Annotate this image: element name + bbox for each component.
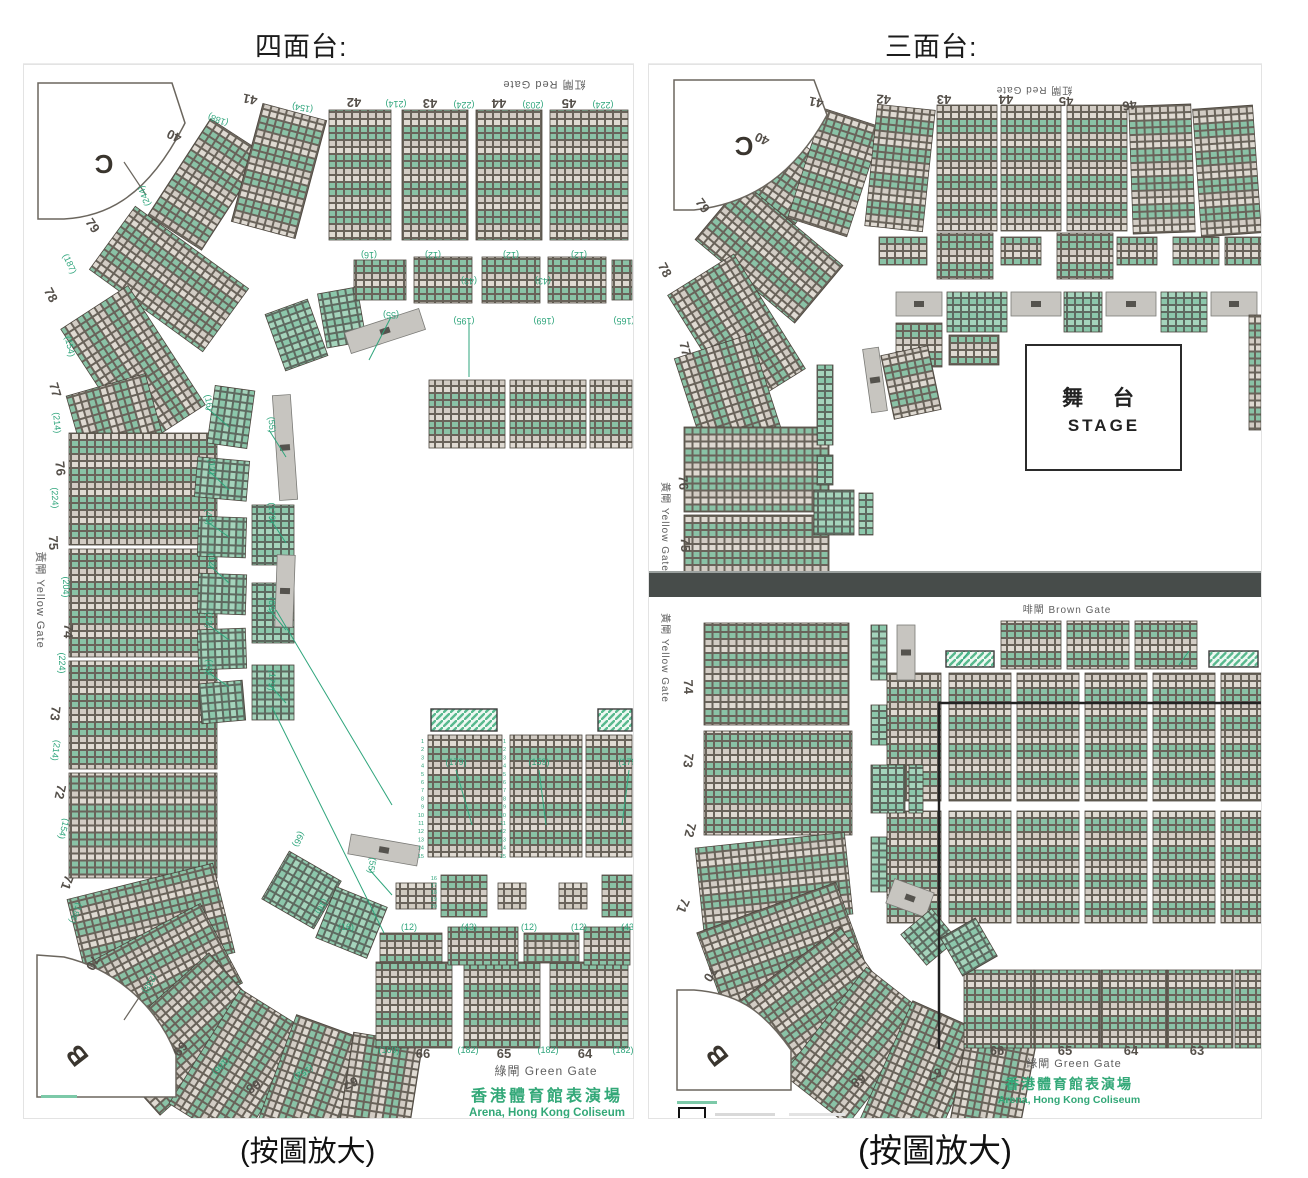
inner-block: [909, 765, 923, 813]
row-number: 9: [503, 805, 506, 811]
yellow-gate-label: 黃閘 Yellow Gate: [659, 482, 672, 572]
mid-block: [354, 260, 406, 300]
row-number: 5: [421, 772, 424, 778]
tier-block: [1173, 237, 1219, 265]
section-41[interactable]: [231, 104, 326, 239]
row-number: 14: [418, 846, 424, 852]
row-number: 7: [421, 788, 424, 794]
venue-name-zh: 香港體育館表演場: [1004, 1076, 1133, 1092]
floor-block: [1017, 673, 1079, 801]
row-number: 4: [421, 764, 424, 770]
seating-chart-three-sided[interactable]: CB紅閘 Red Gate黃閘 Yellow Gate黃閘 Yellow Gat…: [648, 64, 1262, 1119]
capacity: (179): [267, 502, 278, 523]
capacity: (179): [618, 757, 633, 767]
section-42[interactable]: [865, 104, 935, 231]
section-num: 71: [673, 896, 693, 915]
section-46[interactable]: [1129, 104, 1195, 234]
capacity: (12): [204, 612, 215, 628]
capacity: (224): [50, 487, 61, 508]
floor-block: [1153, 673, 1215, 801]
section-num: 43: [423, 96, 437, 111]
divider-top: [649, 571, 1261, 573]
screen-block: [1209, 651, 1258, 667]
row-number: 15: [500, 854, 506, 860]
corridor-strip: [1106, 292, 1156, 316]
row-number: 2: [421, 747, 424, 753]
row-number: 12: [500, 829, 506, 835]
floor-block: [949, 673, 1011, 801]
tier-block: [1225, 237, 1261, 265]
row-number: 6: [421, 780, 424, 786]
capacity: (12): [521, 922, 537, 932]
capacity: (214): [50, 739, 63, 761]
row-number: 8: [421, 796, 424, 802]
green-gate-label: 綠閘 Green Gate: [494, 1064, 597, 1078]
section-num: 66: [416, 1046, 430, 1061]
mid-block: [612, 260, 632, 300]
capacity: (43): [621, 922, 633, 932]
corridor-strip: [897, 625, 915, 680]
floor-block: [1085, 673, 1147, 801]
capacity: (169): [533, 316, 554, 326]
floor-block: [441, 875, 487, 917]
capacity: (182): [537, 1045, 558, 1055]
capacity: (195): [453, 316, 474, 326]
section-num: 66: [990, 1043, 1004, 1058]
screen-block: [431, 709, 497, 731]
row-number: 1: [503, 739, 506, 745]
inner-block: [871, 765, 905, 813]
section-74[interactable]: [704, 623, 849, 725]
section-65[interactable]: [1034, 970, 1100, 1048]
inner-block: [817, 365, 833, 445]
section-num: 45: [562, 96, 576, 111]
mid-block: [482, 257, 540, 303]
corridor-tag: [914, 301, 924, 307]
row-number: 17: [431, 883, 437, 889]
row-number: 18: [431, 890, 437, 896]
section-edge[interactable]: [1235, 970, 1261, 1048]
capacity: (244): [136, 184, 153, 207]
tier-block: [1064, 292, 1102, 332]
row-number: 9: [421, 805, 424, 811]
section-num: 75: [678, 537, 693, 552]
row-number: 5: [503, 772, 506, 778]
corridor-strip: [348, 834, 420, 866]
row-number: 6: [503, 780, 506, 786]
corridor-tag: [1031, 301, 1041, 307]
row-number: 4: [503, 764, 506, 770]
capacity: (55): [383, 310, 399, 320]
section-num: 44: [998, 92, 1013, 107]
inner-block: [197, 573, 246, 615]
row-number: 10: [418, 813, 424, 819]
capacity: (159): [528, 757, 549, 767]
floor-block: [586, 735, 632, 857]
capacity: (12): [571, 922, 587, 932]
row-number: 11: [500, 821, 506, 827]
corridor-strip: [1211, 292, 1257, 316]
section-num: 78: [41, 285, 61, 305]
legend-text-bar: [789, 1113, 845, 1116]
section-74[interactable]: [69, 661, 217, 769]
section-num: 74: [681, 679, 697, 695]
screen-block: [946, 651, 994, 667]
floor-block: [1135, 621, 1197, 669]
row-number: 7: [503, 788, 506, 794]
right-panel-title: 三面台:: [885, 25, 978, 64]
capacity: (43): [461, 276, 477, 286]
section-num: 42: [347, 95, 361, 110]
tier-block: [1001, 237, 1041, 265]
section-num: 75: [46, 535, 61, 550]
row-number: 15: [418, 854, 424, 860]
row-number: 20: [431, 904, 437, 910]
inner-block: [207, 385, 255, 448]
row-number: 10: [500, 813, 506, 819]
screen-block: [598, 709, 632, 731]
venue-name-en: Arena, Hong Kong Coliseum: [469, 1107, 625, 1118]
row-number: 8: [503, 796, 506, 802]
corridor-tag: [280, 588, 290, 594]
floor-block: [1001, 621, 1061, 669]
seating-chart-four-sided[interactable]: 1234567891011121314151234567891011121314…: [23, 64, 634, 1119]
capacity: (16): [203, 394, 216, 412]
inner-block: [859, 493, 873, 535]
stage-label-en: STAGE: [1068, 416, 1140, 435]
capacity: (43): [204, 509, 215, 525]
small-print: [41, 1095, 77, 1098]
capacity: (224): [453, 100, 474, 110]
section-num: 74: [61, 624, 77, 640]
tier-block: [1161, 292, 1207, 332]
section-43[interactable]: [937, 105, 997, 231]
row-number: 3: [503, 755, 506, 761]
corner-letter-c: C: [94, 149, 113, 179]
section-num: 43: [937, 92, 951, 107]
section-num: 72: [52, 783, 70, 800]
inner-block: [871, 625, 887, 680]
capacity: (224): [57, 652, 67, 673]
row-number: 14: [500, 846, 506, 852]
section-num: 76: [676, 475, 692, 490]
row-number: 1: [421, 739, 424, 745]
section-44[interactable]: [1001, 105, 1061, 231]
left-panel-caption: (按圖放大): [240, 1128, 375, 1170]
venue-name-zh: 香港體育館表演場: [470, 1086, 623, 1105]
row-number: 16: [431, 876, 437, 882]
floor-block: [1085, 811, 1147, 923]
section-45[interactable]: [550, 110, 628, 240]
tier-block: [1249, 315, 1261, 430]
capacity: (203): [522, 100, 543, 110]
floor-block: [1221, 811, 1261, 923]
capacity: (66): [291, 830, 307, 849]
legend-box: [679, 1108, 705, 1118]
three-sided-svg: CB紅閘 Red Gate黃閘 Yellow Gate黃閘 Yellow Gat…: [649, 65, 1261, 1118]
floor-block: [1067, 621, 1129, 669]
section-num: 45: [1059, 94, 1074, 109]
section-num: 79: [82, 215, 103, 235]
inner-block: [265, 299, 328, 371]
venue-name-en: Arena, Hong Kong Coliseum: [998, 1094, 1140, 1106]
inner-block: [871, 837, 887, 892]
capacity: (43): [461, 922, 477, 932]
floor-block: [584, 927, 630, 965]
section-76[interactable]: [684, 427, 829, 512]
capacity: (12): [503, 250, 519, 260]
floor-block: [510, 380, 586, 448]
section-47[interactable]: [1193, 105, 1261, 237]
capacity: (224): [592, 100, 613, 110]
section-73[interactable]: [69, 773, 217, 878]
floor-block: [602, 875, 632, 917]
capacity: (16): [338, 922, 354, 932]
section-66[interactable]: [964, 970, 1034, 1048]
floor-block: [1221, 673, 1261, 801]
section-num: 63: [1190, 1043, 1204, 1058]
inner-block: [817, 455, 833, 485]
floor-block: [524, 933, 579, 963]
floor-block: [1153, 811, 1215, 923]
capacity: (55): [266, 416, 277, 433]
section-45[interactable]: [1067, 105, 1127, 231]
section-num: 41: [807, 94, 824, 112]
corridor-strip: [1011, 292, 1061, 316]
floor-block: [510, 735, 582, 857]
row-number: 19: [431, 897, 437, 903]
capacity: (12): [401, 922, 417, 932]
tier-block: [1117, 237, 1157, 265]
section-num: 73: [680, 752, 696, 768]
legend-text-bar: [715, 1113, 775, 1116]
capacity: (169): [378, 1045, 399, 1055]
capacity: (182): [612, 1045, 633, 1055]
row-number: 13: [500, 837, 506, 843]
capacity: (43): [203, 659, 214, 676]
capacity: (204): [61, 576, 71, 597]
row-number: 11: [418, 821, 424, 827]
inner-block: [871, 705, 887, 745]
section-75[interactable]: [69, 549, 217, 657]
floor-block: [448, 927, 518, 965]
capacity: (165): [613, 316, 633, 326]
page: { "header": { "left_title": "四面台:", "rig…: [0, 0, 1308, 1178]
section-73[interactable]: [704, 731, 852, 835]
capacity: (16): [361, 250, 377, 260]
capacity: (55): [366, 857, 379, 875]
floor-block: [1017, 811, 1079, 923]
corridor-strip: [275, 555, 296, 628]
corridor-tag: [1126, 301, 1136, 307]
capacity: (179): [266, 669, 278, 691]
section-num: 46: [1121, 97, 1137, 114]
inner-block: [194, 457, 249, 501]
section-num: 72: [681, 821, 699, 839]
capacity: (182): [457, 1045, 478, 1055]
section-42[interactable]: [329, 110, 391, 240]
tier-block: [949, 335, 999, 365]
section-num: 64: [578, 1046, 593, 1061]
tier-block: [1057, 233, 1113, 279]
row-number: 3: [421, 755, 424, 761]
row-number: 13: [418, 837, 424, 843]
row-number: 12: [418, 829, 424, 835]
inner-block: [814, 490, 854, 535]
section-75[interactable]: [684, 515, 829, 573]
four-sided-svg: 1234567891011121314151234567891011121314…: [24, 65, 633, 1118]
capacity: (12): [425, 250, 441, 260]
row-number: 2: [503, 747, 506, 753]
capacity: (179): [445, 757, 466, 767]
capacity: (43): [535, 276, 551, 286]
floor-block: [498, 883, 526, 909]
capacity: (69): [267, 597, 278, 613]
right-panel-caption: (按圖放大): [858, 1124, 1012, 1172]
yellow-gate-label: 黃閘 Yellow Gate: [34, 551, 47, 648]
section-65[interactable]: [464, 962, 540, 1048]
floor-block: [590, 380, 632, 448]
capacity: (187): [61, 252, 79, 275]
green-gate-label: 綠閘 Green Gate: [1026, 1057, 1122, 1070]
capacity: (12): [207, 553, 217, 569]
section-num: 41: [241, 91, 258, 109]
inner-block: [198, 680, 245, 724]
section-num: 78: [655, 260, 675, 280]
section-63[interactable]: [1167, 970, 1233, 1048]
stage-label-zh: 舞 台: [1062, 386, 1146, 410]
yellow-gate-label: 黃閘 Yellow Gate: [659, 613, 672, 703]
section-64[interactable]: [1101, 970, 1167, 1048]
brown-gate-label: 啡閘 Brown Gate: [1023, 604, 1112, 616]
tier-block: [947, 292, 1007, 332]
corridor-tag: [1229, 301, 1239, 307]
floor-block: [380, 933, 442, 963]
corner-letter-c: C: [734, 131, 753, 161]
section-44[interactable]: [476, 110, 542, 240]
capacity: (12): [206, 458, 217, 475]
section-num: 64: [1124, 1043, 1139, 1058]
inner-block: [941, 918, 998, 976]
floor-block: [559, 883, 587, 909]
section-num: 44: [491, 96, 506, 111]
section-num: 65: [497, 1046, 511, 1061]
floor-block: [429, 380, 505, 448]
capacity: (12): [571, 250, 587, 260]
red-gate-label: 紅閘 Red Gate: [502, 78, 585, 91]
left-panel-title: 四面台:: [255, 25, 348, 64]
corridor-tag: [901, 650, 911, 656]
capacity: (214): [385, 99, 406, 109]
section-num: 42: [876, 91, 892, 107]
section-64[interactable]: [550, 962, 628, 1048]
section-num: 77: [46, 381, 64, 399]
capacity: (214): [51, 412, 63, 434]
section-43[interactable]: [402, 110, 468, 240]
floor-block: [428, 735, 502, 857]
corridor-strip: [272, 395, 297, 501]
section-66[interactable]: [376, 962, 452, 1048]
floor-block: [949, 811, 1011, 923]
tier-block: [879, 237, 927, 265]
mid-block: [548, 257, 606, 303]
section-num: 73: [47, 705, 63, 721]
small-print: [677, 1101, 717, 1104]
tier-block: [937, 233, 993, 279]
section-num: 65: [1058, 1043, 1072, 1058]
section-num: 76: [52, 461, 68, 477]
corridor-strip: [896, 292, 942, 316]
divider-bar: [649, 573, 1261, 597]
